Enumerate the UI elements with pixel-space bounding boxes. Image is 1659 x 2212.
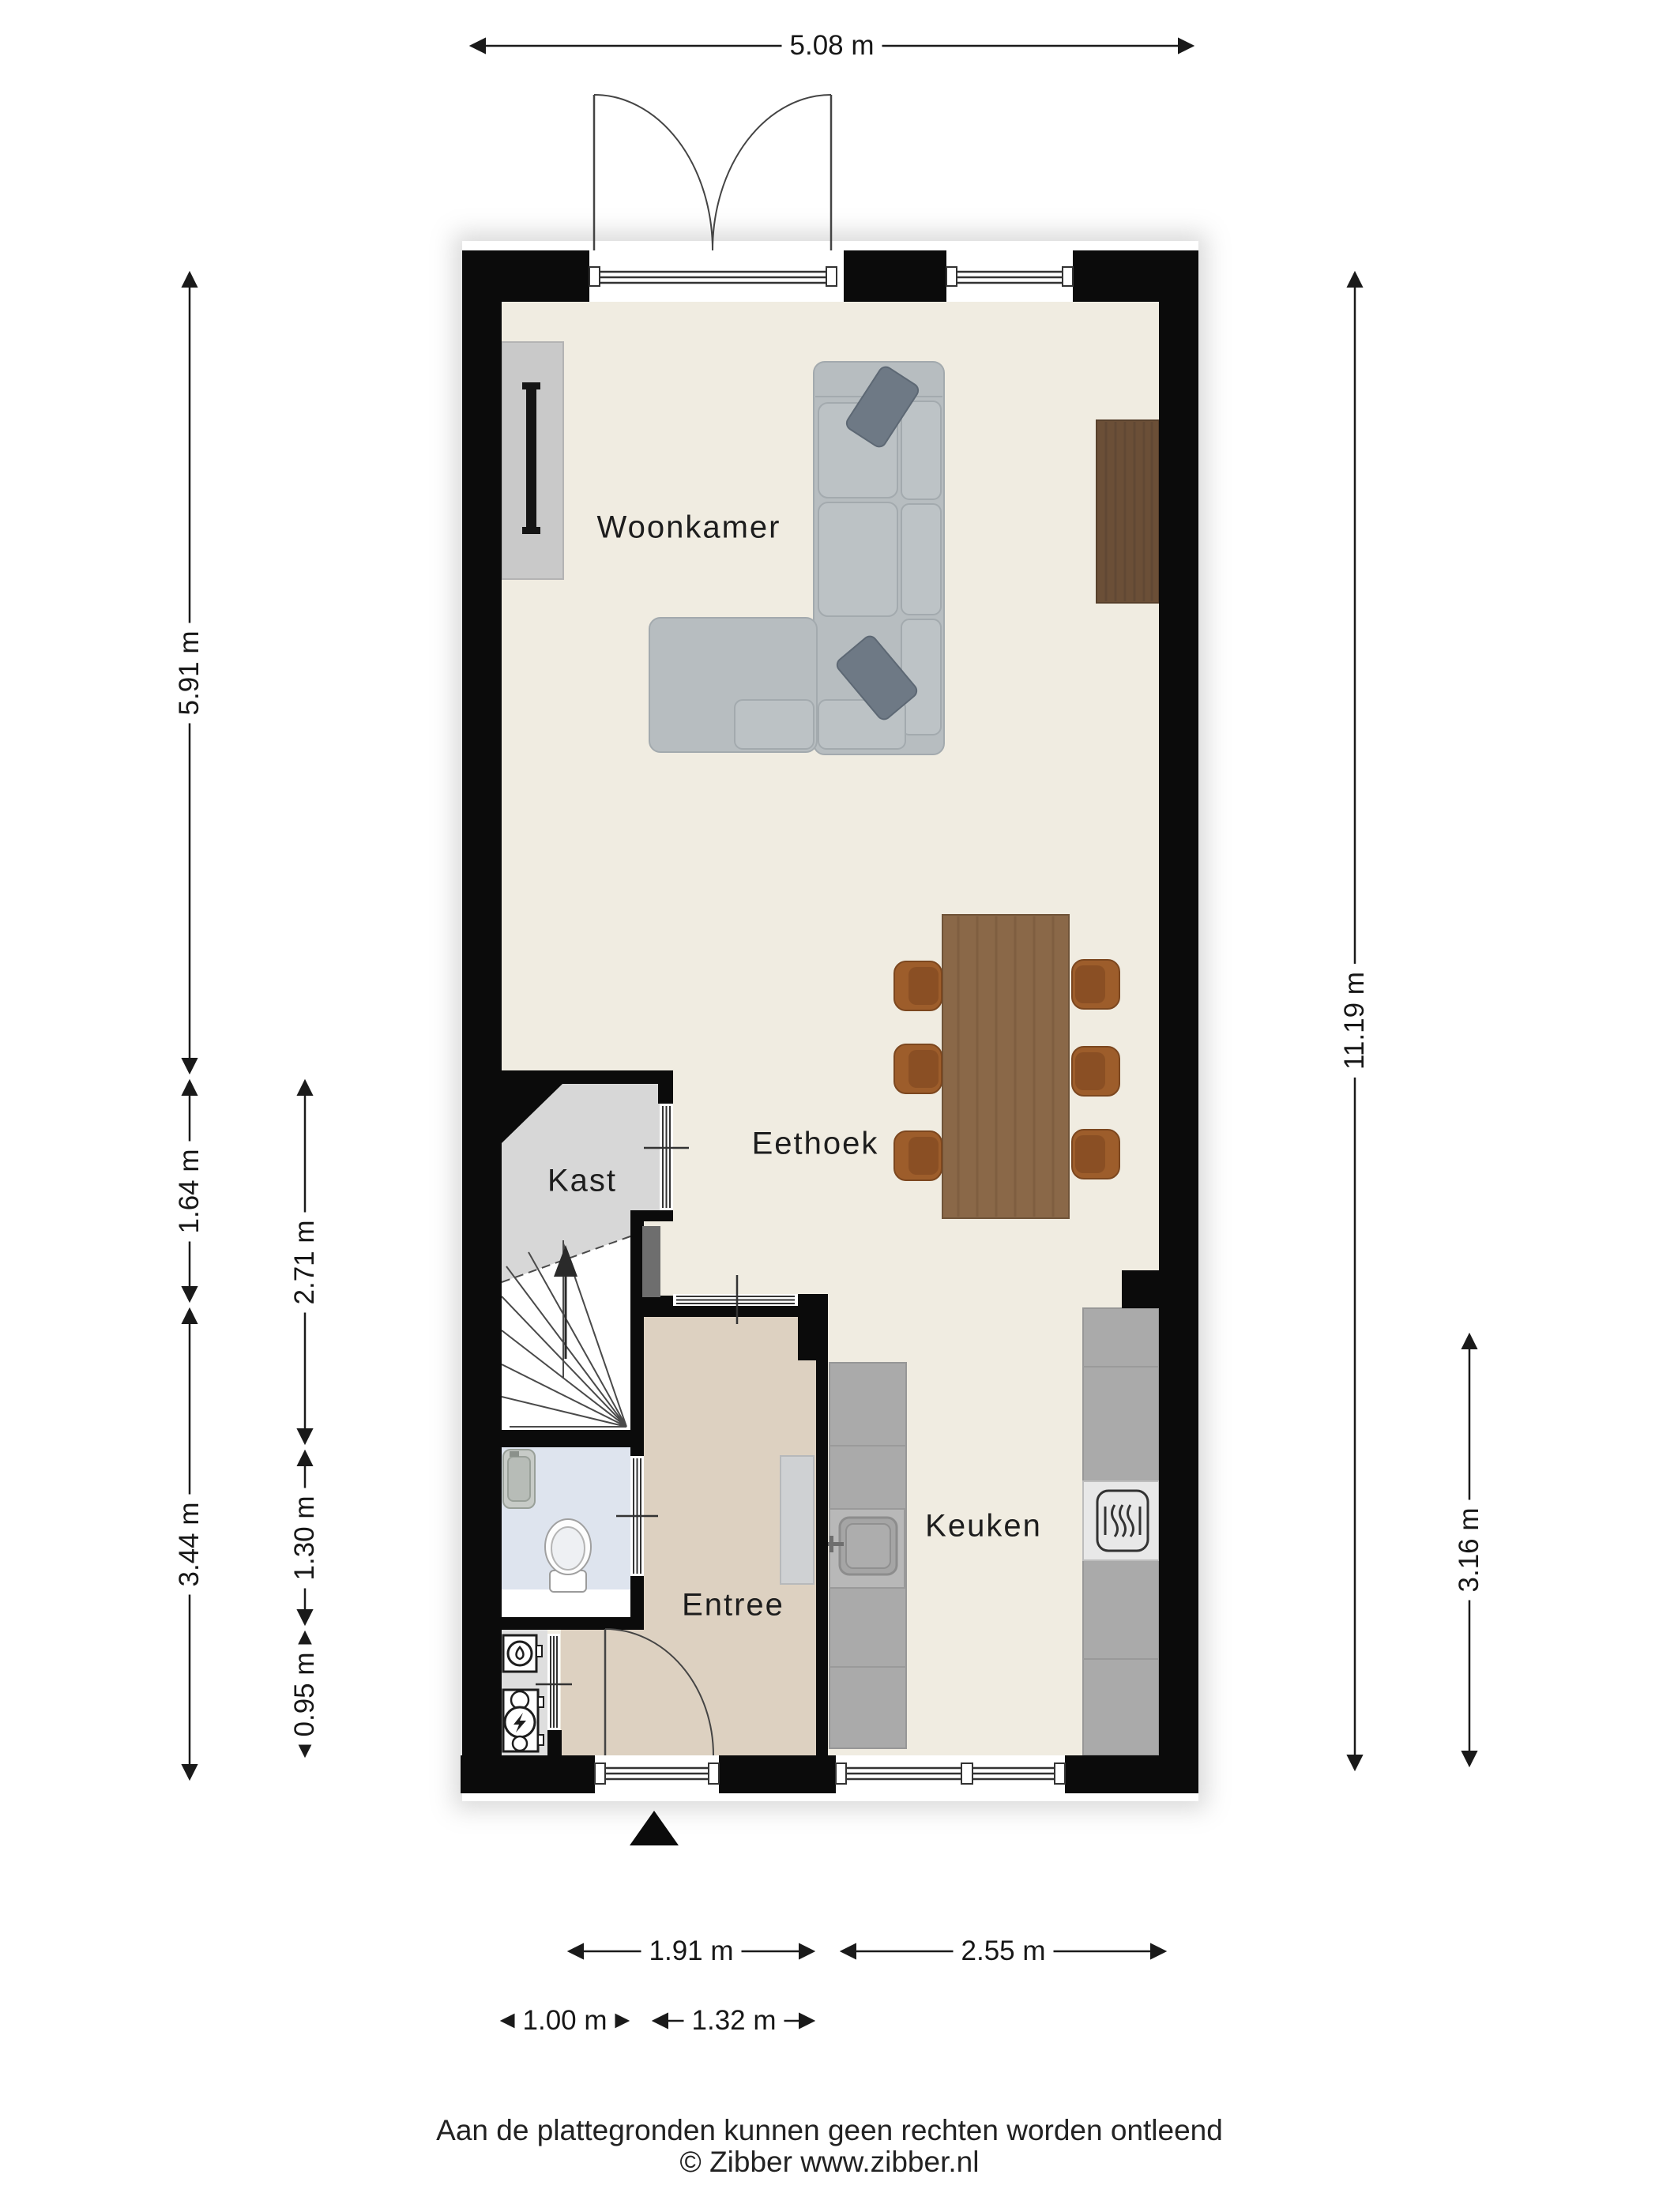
- wall-top-left: [462, 250, 589, 302]
- sofa-back-cushion: [901, 401, 941, 499]
- room-label-kast: Kast: [547, 1164, 617, 1199]
- dimension-label-kitchen-height: 3.16 m: [1454, 1500, 1485, 1601]
- dimension-label-entree-width: 1.91 m: [641, 1935, 742, 1967]
- dimension-label-stairs-zone: 2.71 m: [289, 1213, 321, 1313]
- water-meter-icon: [503, 1635, 542, 1672]
- chair: [1072, 960, 1119, 1009]
- kitchen-counter-left: [823, 1363, 906, 1748]
- wall-bottom-pier: [719, 1755, 836, 1793]
- tv-cabinet: [502, 342, 563, 579]
- room-label-eethoek: Eethoek: [752, 1127, 879, 1162]
- sofa-seat-cushion: [818, 502, 897, 616]
- wall-bottom-left: [461, 1755, 595, 1793]
- wall-top-right: [1073, 250, 1198, 302]
- chair: [894, 1044, 942, 1093]
- kitchen-counter-right: [1083, 1308, 1159, 1755]
- dimension-label-lower-zone: 3.44 m: [174, 1495, 205, 1595]
- dimension-label-toilet-zone: 1.30 m: [289, 1488, 321, 1589]
- room-label-entree: Entree: [682, 1588, 784, 1623]
- wall-toilet-bottom: [502, 1617, 644, 1630]
- chair: [1072, 1047, 1119, 1096]
- wall-right: [1159, 250, 1198, 1793]
- floor-plan-drawing: [0, 0, 1659, 2212]
- toilet-duct-recess: [502, 1589, 630, 1617]
- wall-toilet-top: [502, 1430, 644, 1447]
- dimension-label-meter-zone: 0.95 m: [289, 1645, 321, 1745]
- tv-icon: [526, 386, 536, 530]
- sofa-seat-cushion: [735, 700, 814, 749]
- wall-kast-corner: [658, 1070, 673, 1104]
- wall-entree-top-right-corner: [798, 1294, 828, 1360]
- entree-cabinet: [781, 1456, 814, 1584]
- footer-disclaimer: Aan de plattegronden kunnen geen rechten…: [436, 2114, 1223, 2147]
- window-top: [946, 250, 1073, 302]
- dining-table: [942, 915, 1069, 1218]
- dimension-label-kitchen-width: 2.55 m: [954, 1935, 1054, 1967]
- footer-copyright: © Zibber www.zibber.nl: [680, 2146, 980, 2179]
- entrance-marker-icon: [630, 1811, 679, 1845]
- chair: [894, 1131, 942, 1180]
- wall-stair-partition: [630, 1210, 644, 1456]
- sofa-back-cushion: [901, 504, 941, 615]
- wall-bottom-right: [1065, 1755, 1198, 1793]
- room-label-woonkamer: Woonkamer: [597, 510, 781, 546]
- french-doors: [589, 95, 837, 302]
- dimension-label-woonkamer-height: 5.91 m: [174, 623, 205, 724]
- wall-kitchen-stub-right: [1122, 1270, 1159, 1308]
- wall-entree-top-left: [644, 1296, 677, 1317]
- dimension-label-kast-zone: 1.64 m: [174, 1142, 205, 1242]
- wall-left: [462, 250, 502, 1793]
- dimension-label-meter-width: 1.00 m: [515, 2005, 615, 2037]
- chair: [894, 961, 942, 1010]
- sideboard-cabinet: [1097, 420, 1159, 603]
- dimension-label-top-width: 5.08 m: [782, 30, 882, 62]
- room-label-keuken: Keuken: [925, 1509, 1042, 1544]
- toilet-icon: [545, 1519, 591, 1592]
- electric-meter-icon: [503, 1690, 544, 1751]
- wall-under-entree-window: [673, 1306, 798, 1317]
- door-panel-stair-cupboard: [642, 1226, 660, 1297]
- toilet-sink: [503, 1450, 535, 1508]
- window-kitchen: [836, 1755, 1065, 1793]
- floorplan-page: Woonkamer Eethoek Kast Entree Keuken 5.0…: [0, 0, 1659, 2212]
- wall-meter-stub: [547, 1730, 562, 1755]
- chair: [1072, 1130, 1119, 1179]
- wall-entree-kitchen: [816, 1359, 828, 1755]
- faucet-icon: [510, 1451, 519, 1457]
- wall-kast-top: [462, 1070, 671, 1084]
- dimension-label-total-height: 11.19 m: [1339, 964, 1371, 1078]
- dimension-label-door-width: 1.32 m: [684, 2005, 784, 2037]
- wall-top-pier: [844, 250, 946, 302]
